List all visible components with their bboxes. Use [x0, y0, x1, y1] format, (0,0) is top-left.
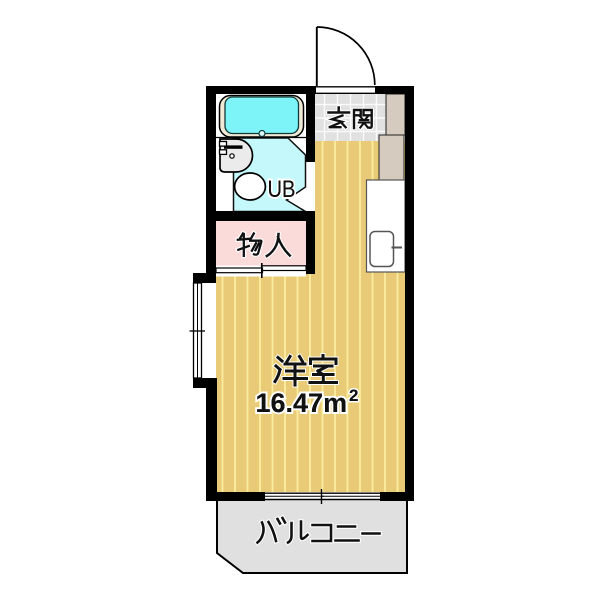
svg-text:2: 2	[349, 386, 358, 405]
svg-text:UB: UB	[268, 176, 296, 203]
svg-text:16.47m: 16.47m	[256, 388, 348, 418]
